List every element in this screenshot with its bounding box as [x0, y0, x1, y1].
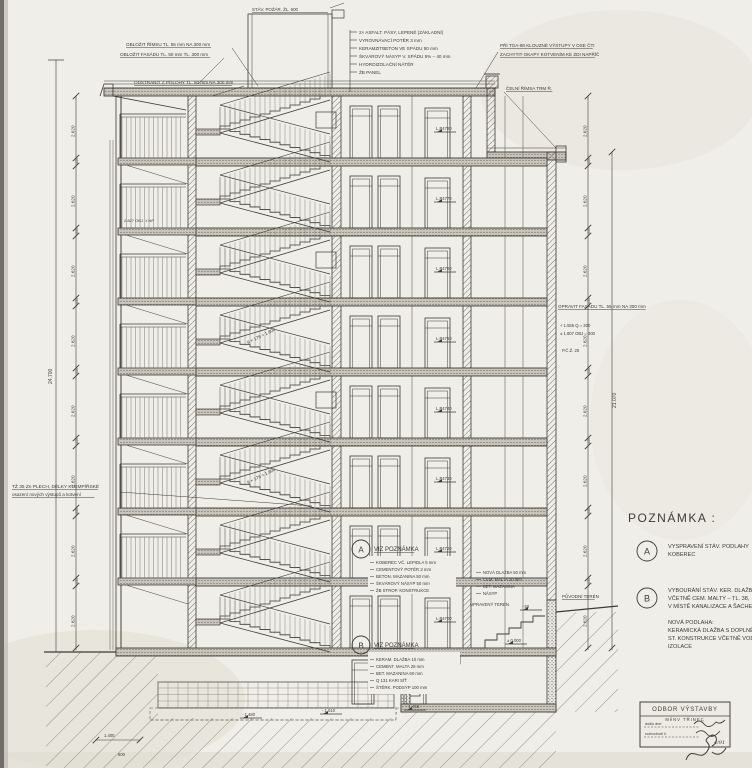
stamp-field-decision: rozhodnutí č. — [645, 732, 667, 736]
spec-line: CEMENTOVÝ POTĚR 2 mm — [376, 567, 431, 572]
dim-value: 2.620 — [71, 335, 76, 347]
dim-value: 450 — [587, 368, 591, 374]
spec-line: BET. MAZANINA 60 mm — [376, 671, 423, 676]
dim-total: 24.700 — [48, 368, 54, 384]
floor-slab — [401, 704, 556, 712]
notes-title: POZNÁMKA : — [628, 510, 716, 525]
note-line: ZACHYTIT OKAPY KOTVENÍM KE ZDI NAPŘÍČ — [500, 50, 600, 57]
section-drawing: 4504504504504504504502.6202.6202.6202.62… — [0, 0, 752, 768]
cut-wall — [487, 88, 495, 152]
level-text: L.P4770 — [436, 196, 452, 201]
dim-value: 2.620 — [583, 545, 588, 557]
roof-spec-line: HYDROIZOLAČNÍ NÁTĚR — [359, 60, 414, 67]
callout-a-letter: A — [358, 546, 364, 555]
note-b-line: VYBOURÁNÍ STÁV. KER. DLAŽBY — [668, 586, 752, 594]
dim-value: 2.620 — [583, 125, 588, 137]
dim-value: 450 — [75, 508, 79, 514]
dim-value: 2.620 — [71, 545, 76, 557]
spec-line: NÁSYP — [483, 591, 497, 596]
half-landing — [196, 409, 220, 415]
gallery-slab — [118, 578, 196, 585]
dim-value: 1.400 — [104, 733, 115, 738]
dim-value: 2.620 — [583, 265, 588, 277]
dim-value: 2.620 — [583, 475, 588, 487]
level-text: L.P4750 — [436, 336, 452, 341]
gallery-slab — [118, 438, 196, 445]
spec-line: CEMENT. MALTA 28 mm — [376, 664, 424, 669]
note-extra-line: NOVÁ PODLAHA: — [668, 619, 714, 626]
gallery-slab — [118, 158, 196, 165]
stamp-number: 4/91 — [713, 740, 725, 746]
spec-line: KOBEREC VČ. LEPIDLA 5 mm — [376, 560, 436, 565]
note-line: OBLOŽIT FASÁDU TL. 50 mm TL. 300 mm — [120, 50, 208, 57]
roof-spec-line: 2× ASFALT. PÁSY, LEPENÉ (ZÁKLADNÍ) — [359, 29, 444, 35]
note-a-line: VYSPRAVENÍ STÁV. PODLAHY — [668, 543, 749, 550]
dim-value: 450 — [75, 158, 79, 164]
half-landing — [196, 269, 220, 275]
roof-spec-line: ŽB PANEL — [359, 68, 381, 75]
callout-b-letter: B — [358, 642, 363, 651]
note-line: ODSTRANIT Z POLOHY TL. 50 mm NA 300 mm — [134, 80, 233, 85]
soil-hatch — [396, 712, 556, 768]
note-b-line: V MÍSTĚ KANALIZACE A ŠACHET – TL. 98 — [668, 602, 752, 610]
level-text: + 1.555 Q = 300 — [560, 323, 591, 328]
level-text: ± 1.807 OBJ = 300 — [560, 331, 596, 336]
level-text: - 1.456 — [406, 704, 420, 709]
floor-slab — [104, 88, 495, 96]
note-line: osazení nových výstupů a kotvení — [12, 491, 82, 497]
soil-hatch — [46, 652, 158, 768]
dim-value: 600 — [118, 752, 126, 757]
scan-edge — [0, 0, 4, 768]
level-text: - 1.480 — [242, 712, 256, 717]
dim-value: 2.620 — [583, 405, 588, 417]
note-a-line: KOBEREC — [668, 552, 695, 558]
half-landing — [196, 619, 220, 625]
half-landing — [196, 339, 220, 345]
dim-value: 2.620 — [583, 195, 588, 207]
dim-value: 450 — [587, 578, 591, 584]
floor-slab — [196, 158, 547, 166]
dim-value: 2.620 — [583, 335, 588, 347]
level-text: L.P4730 — [436, 476, 452, 481]
half-landing — [196, 549, 220, 555]
note-line: PŘI TGA-88 KLOUZNÉ VÝSTUPY V OSE ČTI — [500, 41, 595, 48]
dim-value: 450 — [75, 438, 79, 444]
dim-value: 2.620 — [71, 125, 76, 137]
level-text: L.P4760 — [436, 266, 452, 271]
dim-value: 450 — [75, 368, 79, 374]
note-extra-line: IZOLACE — [668, 644, 692, 650]
spec-line: ŠTĚRK. PODSYP 100 mm — [376, 685, 428, 690]
terrain-label: PŮVODNÍ TERÉN — [562, 593, 599, 599]
dim-total: 21.070 — [612, 392, 618, 408]
cut-wall — [547, 152, 556, 600]
dim-value: 450 — [75, 228, 79, 234]
roof-spec-line: KERAMZITBETON VE SPÁDU 50 mm — [359, 45, 438, 51]
level-text: P.Č.Ž. 25 — [562, 348, 580, 353]
spec-line: BET. MAZANINA — [483, 584, 515, 589]
callout-label: VIZ POZNÁMKA — [374, 642, 419, 649]
spec-line: Q 131 KARI SÍŤ — [376, 678, 407, 683]
note-line: 2.827 OBJ. ± NP — [124, 218, 154, 223]
dim-value: 450 — [587, 438, 591, 444]
scan-edge-soft — [4, 0, 8, 768]
half-landing — [196, 129, 220, 135]
note-a-letter: A — [644, 547, 650, 557]
dim-value: 2.620 — [71, 265, 76, 277]
level-text: L.P4700 — [436, 616, 452, 621]
level-text: L.P4720 — [436, 546, 452, 551]
stamp-office: ODBOR VÝSTAVBY — [652, 706, 718, 713]
floor-slab — [196, 508, 547, 516]
note-b-letter: B — [644, 594, 650, 604]
note-extra-line: KERAMICKÁ DLAŽBA S DOPLNĚNÍM — [668, 626, 752, 634]
roof-spec-line: ŠKVÁROVÝ NÁSYP V. SPÁDU 5% – 40 mm — [359, 53, 451, 59]
callout-label: VIZ POZNÁMKA — [374, 546, 419, 553]
dim-value: 450 — [587, 158, 591, 164]
floor-slab — [196, 298, 547, 306]
spec-line: ŽB STROP. KONSTRUKCE — [376, 588, 429, 593]
spec-line: NOVÁ DLAŽBA 50 mm — [483, 570, 527, 575]
spec-line: CEM. MALTA 20 mm — [483, 577, 522, 582]
soil-hatch — [158, 718, 396, 768]
dim-value: 450 — [587, 508, 591, 514]
dim-value: 450 — [75, 578, 79, 584]
floor-slab — [196, 438, 547, 446]
level-text: - 50 — [522, 604, 530, 609]
dim-value: 2.620 — [583, 615, 588, 627]
note-line: OPRAVIT FASÁDU TL. 55 mm NA 300 mm — [558, 303, 646, 309]
gallery-slab — [118, 508, 196, 515]
note-extra-line: ST. KONSTRUKCE VČETNĚ VODOTĚSNÉ — [668, 634, 752, 642]
terrain-label: UPRAVENÝ TERÉN — [470, 602, 509, 607]
dim-value: 2.620 — [71, 195, 76, 207]
half-landing — [196, 479, 220, 485]
gallery-slab — [118, 298, 196, 305]
note-line: OBLOŽIT ŘÍMSU TL. 55 mm NA 300 mm — [126, 40, 210, 47]
dim-value: 450 — [75, 298, 79, 304]
dim-value: 2.620 — [71, 615, 76, 627]
dim-value: 2.620 — [71, 405, 76, 417]
spec-line: ŠKVÁROVÝ NÁSYP 50 mm — [376, 581, 430, 586]
dim-value: 450 — [587, 228, 591, 234]
level-text: ± 0.000 — [507, 638, 522, 643]
half-landing — [196, 199, 220, 205]
floor-slab — [116, 648, 556, 656]
stamp-field-date: došlo dne — [645, 722, 661, 726]
gallery-slab — [118, 228, 196, 235]
gallery-slab — [118, 368, 196, 375]
spec-line: KERAM. DLAŽBA 10 mm — [376, 657, 425, 662]
note-b-line: VČETNĚ CEM. MALTY – TL. 38, — [668, 594, 750, 602]
floor-slab — [196, 228, 547, 236]
note-line: STÁV. POŽÁR. ŽL. 600 — [252, 7, 299, 12]
level-text: - 1.010 — [322, 708, 336, 713]
blueprint-scan: 4504504504504504504502.6202.6202.6202.62… — [0, 0, 752, 768]
roof-spec-line: VYROVNÁVACÍ POTĚR 3 mm — [359, 36, 422, 43]
level-text: L.P4780 — [436, 126, 452, 131]
note-line: ČELNÍ ŘÍMSA TRM Ř. — [506, 84, 552, 91]
floor-slab — [196, 368, 547, 376]
spec-line: BETON. MAZANINA 50 mm — [376, 574, 430, 579]
level-text: L.P4740 — [436, 406, 452, 411]
drawing-primitive — [486, 76, 498, 88]
